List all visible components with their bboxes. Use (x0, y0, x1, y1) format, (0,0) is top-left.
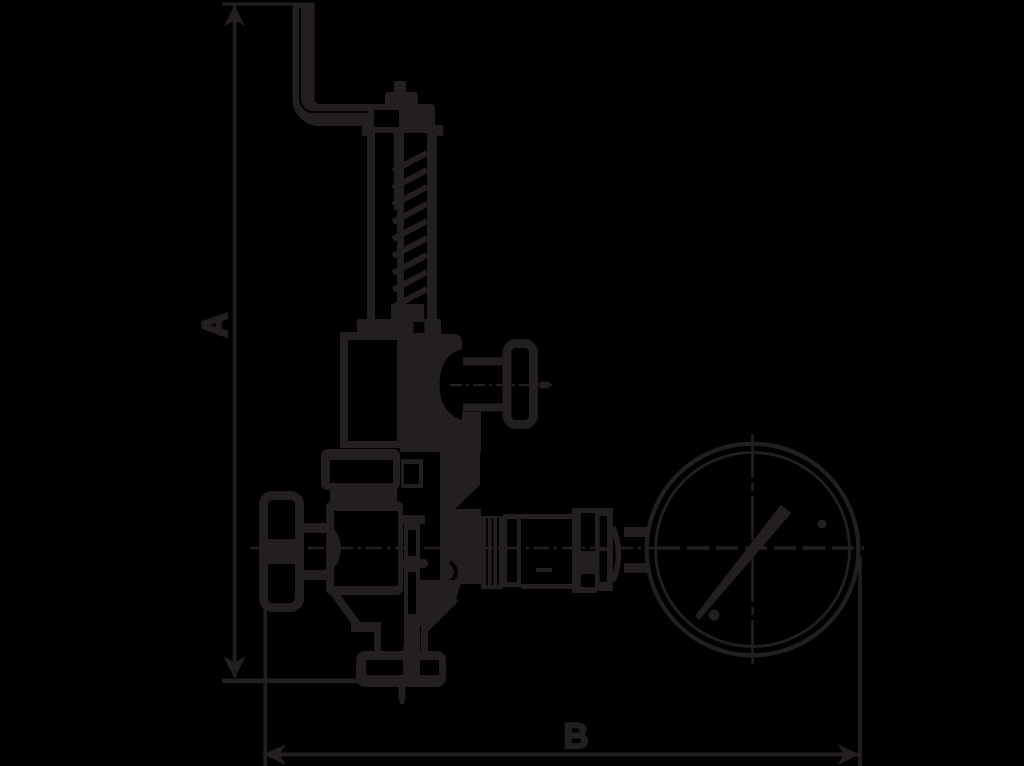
svg-text:B: B (563, 717, 588, 756)
svg-text:A: A (196, 312, 235, 337)
